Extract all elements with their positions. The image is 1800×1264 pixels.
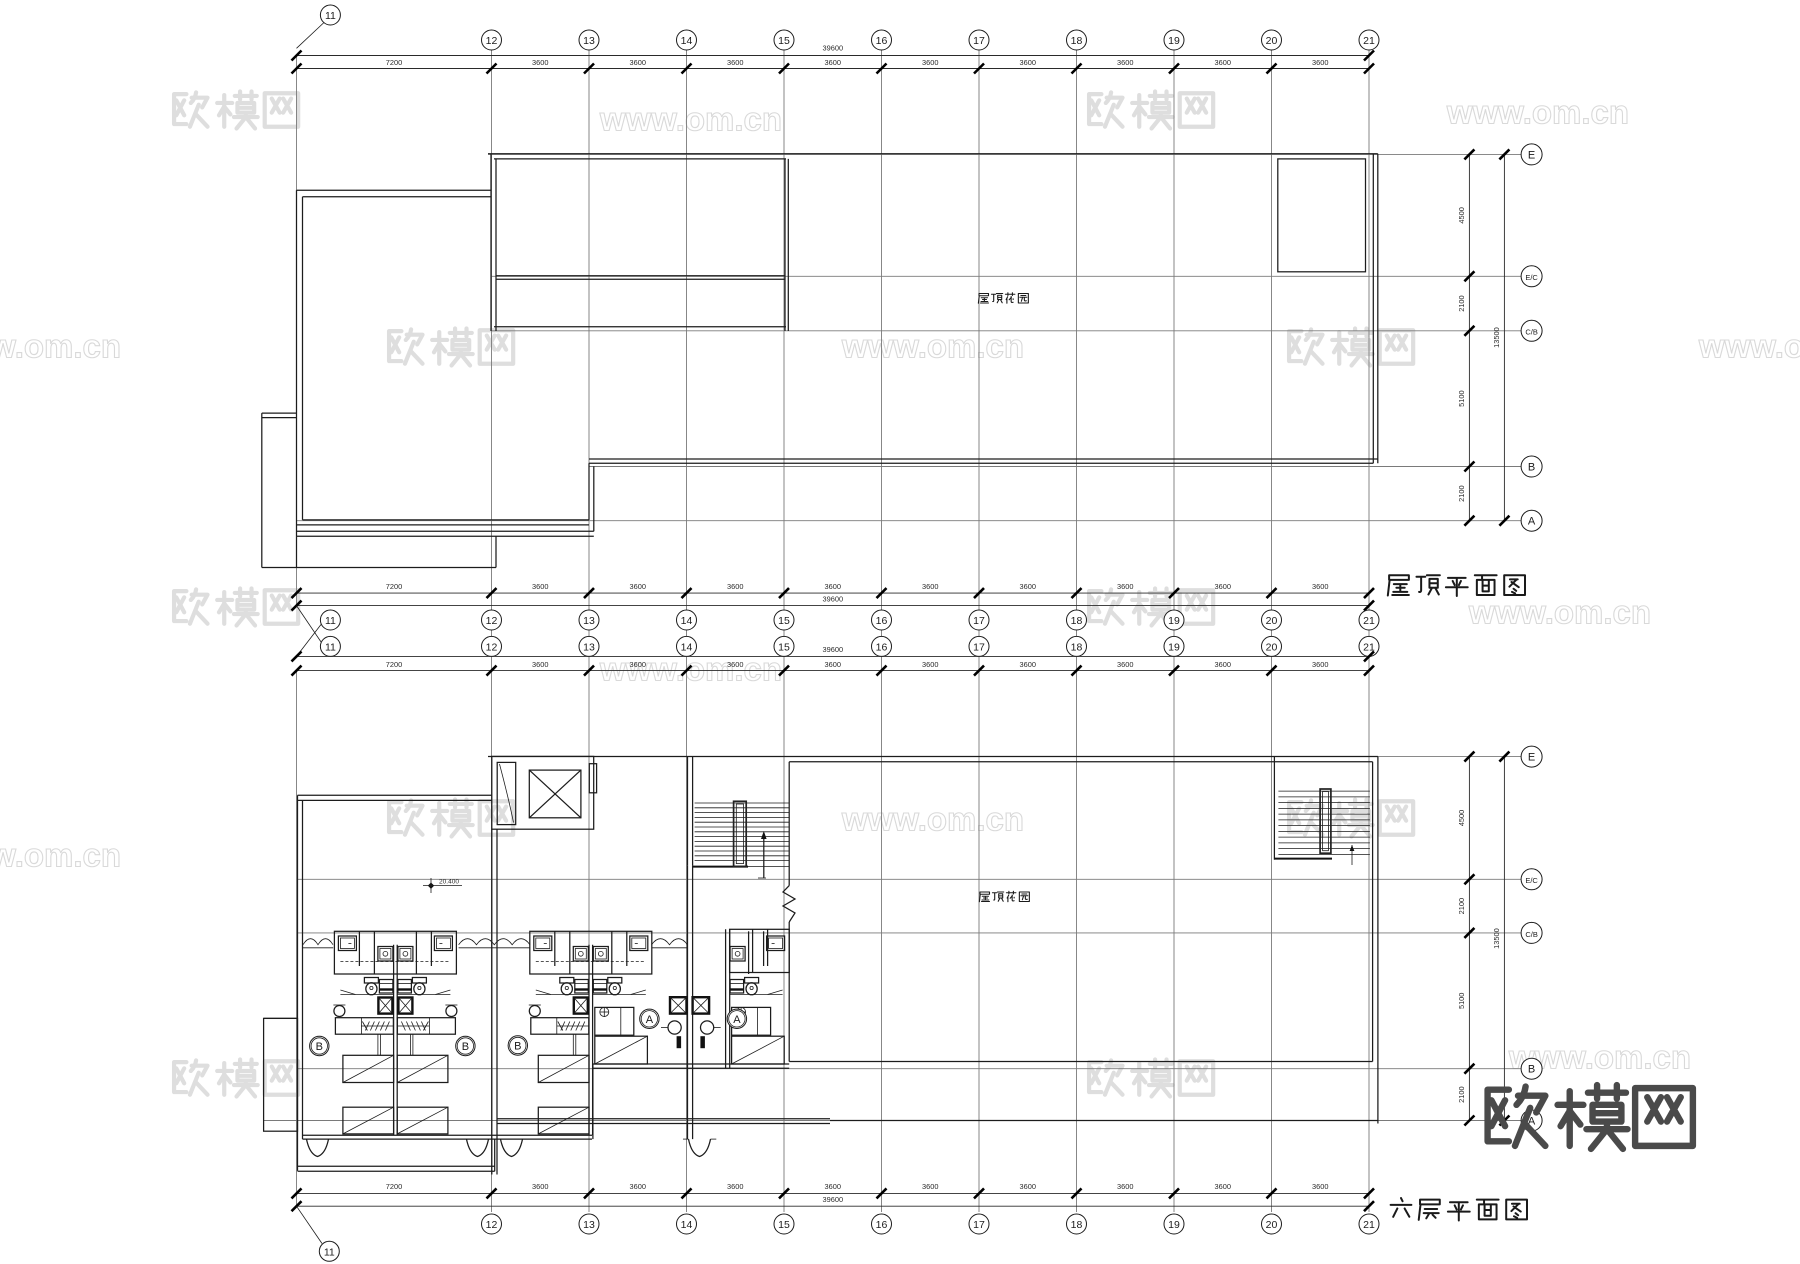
svg-text:E: E xyxy=(1528,149,1535,161)
svg-text:14: 14 xyxy=(681,35,693,47)
svg-text:15: 15 xyxy=(778,1219,790,1231)
svg-text:3600: 3600 xyxy=(727,660,743,669)
svg-text:www.om.cn: www.om.cn xyxy=(0,328,121,365)
svg-text:3600: 3600 xyxy=(1020,582,1036,591)
svg-text:21: 21 xyxy=(1363,1219,1375,1231)
svg-text:3600: 3600 xyxy=(1117,58,1133,67)
svg-text:B: B xyxy=(316,1041,323,1053)
svg-text:39600: 39600 xyxy=(823,1195,844,1204)
svg-text:3600: 3600 xyxy=(922,582,938,591)
svg-text:3600: 3600 xyxy=(1215,58,1231,67)
svg-text:7200: 7200 xyxy=(386,1182,402,1191)
svg-text:3600: 3600 xyxy=(1117,582,1133,591)
svg-text:12: 12 xyxy=(486,641,498,653)
svg-text:7200: 7200 xyxy=(386,582,402,591)
svg-text:39600: 39600 xyxy=(823,595,844,604)
svg-text:20: 20 xyxy=(1266,641,1278,653)
svg-text:11: 11 xyxy=(325,641,336,653)
svg-text:5100: 5100 xyxy=(1457,993,1466,1009)
svg-text:39600: 39600 xyxy=(823,645,844,654)
svg-text:www.om.cn: www.om.cn xyxy=(599,101,782,138)
svg-text:E: E xyxy=(1528,752,1535,764)
svg-text:B: B xyxy=(1528,1064,1535,1076)
svg-text:www.om.cn: www.om.cn xyxy=(841,801,1024,838)
svg-text:14: 14 xyxy=(681,641,693,653)
svg-text:www.om.cn: www.om.cn xyxy=(1446,94,1629,131)
svg-text:18: 18 xyxy=(1071,35,1083,47)
svg-text:17: 17 xyxy=(973,35,985,47)
svg-text:14: 14 xyxy=(681,615,693,627)
svg-text:3600: 3600 xyxy=(630,1182,646,1191)
svg-text:3600: 3600 xyxy=(825,660,841,669)
svg-text:13: 13 xyxy=(583,1219,595,1231)
svg-text:3600: 3600 xyxy=(922,58,938,67)
svg-text:www.om.cn: www.om.cn xyxy=(841,328,1024,365)
svg-text:15: 15 xyxy=(778,641,790,653)
svg-text:2100: 2100 xyxy=(1457,295,1466,311)
svg-text:3600: 3600 xyxy=(1312,582,1328,591)
svg-text:13: 13 xyxy=(583,641,595,653)
svg-text:20.400: 20.400 xyxy=(439,879,459,886)
svg-text:3600: 3600 xyxy=(825,582,841,591)
svg-text:3600: 3600 xyxy=(727,58,743,67)
svg-text:15: 15 xyxy=(778,35,790,47)
svg-text:3600: 3600 xyxy=(1020,58,1036,67)
svg-text:16: 16 xyxy=(876,641,888,653)
svg-text:20: 20 xyxy=(1266,35,1278,47)
svg-text:3600: 3600 xyxy=(1117,1182,1133,1191)
svg-text:3600: 3600 xyxy=(727,1182,743,1191)
svg-text:20: 20 xyxy=(1266,615,1278,627)
svg-text:3600: 3600 xyxy=(1312,1182,1328,1191)
svg-text:19: 19 xyxy=(1168,615,1180,627)
svg-text:7200: 7200 xyxy=(386,660,402,669)
svg-text:17: 17 xyxy=(973,615,985,627)
svg-text:19: 19 xyxy=(1168,641,1180,653)
svg-text:11: 11 xyxy=(325,615,336,627)
svg-text:16: 16 xyxy=(876,615,888,627)
svg-text:A: A xyxy=(1528,516,1536,528)
svg-text:3600: 3600 xyxy=(532,1182,548,1191)
svg-text:3600: 3600 xyxy=(825,1182,841,1191)
svg-text:3600: 3600 xyxy=(727,582,743,591)
svg-text:21: 21 xyxy=(1363,615,1375,627)
svg-text:B: B xyxy=(462,1041,469,1053)
svg-text:12: 12 xyxy=(486,35,498,47)
svg-text:17: 17 xyxy=(973,1219,985,1231)
svg-text:4500: 4500 xyxy=(1457,810,1466,826)
svg-text:3600: 3600 xyxy=(1020,1182,1036,1191)
svg-text:3600: 3600 xyxy=(1215,582,1231,591)
svg-text:3600: 3600 xyxy=(532,660,548,669)
svg-text:3600: 3600 xyxy=(1117,660,1133,669)
svg-text:18: 18 xyxy=(1071,1219,1083,1231)
svg-text:A: A xyxy=(733,1014,741,1026)
svg-text:A: A xyxy=(646,1014,654,1026)
svg-text:16: 16 xyxy=(876,35,888,47)
svg-text:18: 18 xyxy=(1071,615,1083,627)
svg-text:www.om.cn: www.om.cn xyxy=(1468,594,1651,631)
svg-text:3600: 3600 xyxy=(825,58,841,67)
svg-text:13: 13 xyxy=(583,615,595,627)
svg-text:www.om.cn: www.om.cn xyxy=(1698,328,1800,365)
svg-text:3600: 3600 xyxy=(1215,1182,1231,1191)
svg-text:13500: 13500 xyxy=(1492,928,1501,949)
svg-text:B: B xyxy=(514,1041,521,1053)
svg-text:17: 17 xyxy=(973,641,985,653)
svg-text:16: 16 xyxy=(876,1219,888,1231)
svg-text:13: 13 xyxy=(583,35,595,47)
svg-text:C/B: C/B xyxy=(1525,930,1538,939)
svg-text:5100: 5100 xyxy=(1457,390,1466,406)
svg-text:3600: 3600 xyxy=(630,660,646,669)
svg-text:2100: 2100 xyxy=(1457,485,1466,501)
svg-text:3600: 3600 xyxy=(1020,660,1036,669)
svg-text:12: 12 xyxy=(486,615,498,627)
svg-text:B: B xyxy=(1528,461,1535,473)
svg-text:3600: 3600 xyxy=(1312,58,1328,67)
svg-text:14: 14 xyxy=(681,1219,693,1231)
svg-text:3600: 3600 xyxy=(532,582,548,591)
svg-text:19: 19 xyxy=(1168,35,1180,47)
svg-text:2100: 2100 xyxy=(1457,898,1466,914)
svg-text:18: 18 xyxy=(1071,641,1083,653)
svg-text:3600: 3600 xyxy=(1312,660,1328,669)
svg-text:20: 20 xyxy=(1266,1219,1278,1231)
svg-text:11: 11 xyxy=(324,1246,335,1258)
svg-text:11: 11 xyxy=(325,10,336,22)
svg-text:3600: 3600 xyxy=(630,58,646,67)
svg-text:19: 19 xyxy=(1168,1219,1180,1231)
svg-text:7200: 7200 xyxy=(386,58,402,67)
svg-text:E/C: E/C xyxy=(1525,273,1538,282)
svg-text:www.om.cn: www.om.cn xyxy=(0,837,121,874)
svg-text:4500: 4500 xyxy=(1457,207,1466,223)
svg-text:3600: 3600 xyxy=(922,1182,938,1191)
svg-text:3600: 3600 xyxy=(922,660,938,669)
svg-text:3600: 3600 xyxy=(1215,660,1231,669)
svg-text:15: 15 xyxy=(778,615,790,627)
svg-text:2100: 2100 xyxy=(1457,1086,1466,1102)
svg-text:3600: 3600 xyxy=(630,582,646,591)
svg-text:21: 21 xyxy=(1363,35,1375,47)
svg-text:12: 12 xyxy=(486,1219,498,1231)
svg-text:13500: 13500 xyxy=(1492,327,1501,348)
svg-text:39600: 39600 xyxy=(823,44,844,53)
svg-text:E/C: E/C xyxy=(1525,876,1538,885)
svg-text:C/B: C/B xyxy=(1525,328,1538,337)
svg-text:3600: 3600 xyxy=(532,58,548,67)
